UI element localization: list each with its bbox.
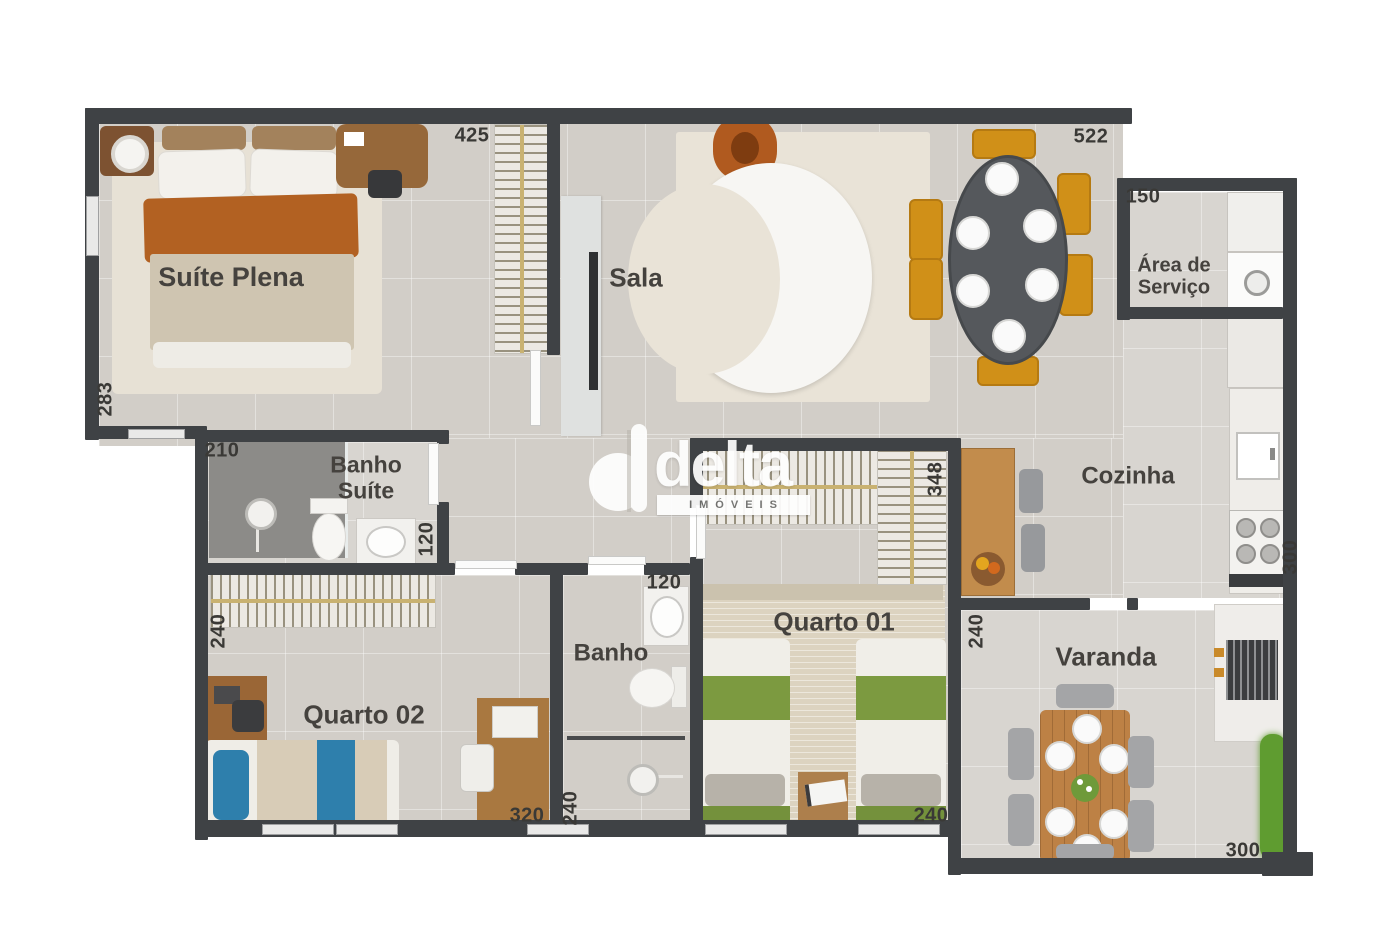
room-label-area-servico: Área de Serviço xyxy=(1122,255,1226,300)
dim-425: 425 xyxy=(455,125,490,148)
room-label-varanda: Varanda xyxy=(1055,642,1156,671)
suite-wardrobe xyxy=(494,124,550,354)
shower-divider xyxy=(567,736,685,740)
wall-segment xyxy=(690,557,703,825)
varanda-chair-left-2 xyxy=(1008,794,1034,846)
quarto02-wardrobe xyxy=(210,574,436,628)
varanda-chair-left-1 xyxy=(1008,728,1034,780)
dining-chair-left-1 xyxy=(909,199,943,261)
plate xyxy=(956,274,990,308)
window xyxy=(705,824,787,835)
wall-segment xyxy=(437,430,449,444)
quarto01-bed-right-blanket xyxy=(856,676,946,720)
window xyxy=(262,824,334,835)
suite-lamp xyxy=(111,135,149,173)
plate xyxy=(985,162,1019,196)
dim-320: 320 xyxy=(510,805,545,828)
plate xyxy=(1045,807,1075,837)
flower xyxy=(1077,779,1083,785)
quarto01-headboard xyxy=(697,584,943,600)
dim-240-quarto02: 240 xyxy=(208,614,231,649)
door-suite xyxy=(530,350,541,426)
stove-front xyxy=(1229,574,1284,587)
window xyxy=(336,824,398,835)
grill-handle xyxy=(1214,668,1224,677)
washing-machine-door xyxy=(1244,270,1270,296)
wall-segment xyxy=(948,598,1090,610)
flower xyxy=(1086,786,1092,792)
toilet-bowl xyxy=(312,513,346,561)
dim-240-varanda: 240 xyxy=(966,614,989,649)
burner xyxy=(1236,544,1256,564)
wall-segment xyxy=(195,430,208,840)
room-label-cozinha: Cozinha xyxy=(1081,464,1174,491)
varanda-chair-top xyxy=(1056,684,1114,708)
watermark-brand: delta xyxy=(654,434,791,497)
tv xyxy=(589,252,598,390)
plate xyxy=(992,319,1026,353)
plate xyxy=(1045,741,1075,771)
dim-240-quarto01: 240 xyxy=(914,805,949,828)
shower-head xyxy=(627,764,659,796)
suite-bed-pillow-back-left xyxy=(162,126,246,150)
plate xyxy=(1023,209,1057,243)
quarto01-bed-left-pillow xyxy=(705,774,785,806)
burner xyxy=(1260,518,1280,538)
wall-segment xyxy=(1127,598,1138,610)
varanda-chair-right-1 xyxy=(1128,736,1154,788)
quarto02-bed-blanket-2 xyxy=(355,740,387,828)
dim-283: 283 xyxy=(95,382,118,417)
plate xyxy=(1072,714,1102,744)
door-quarto02 xyxy=(455,560,517,569)
dim-120-banho-suite: 120 xyxy=(416,522,439,557)
suite-bed-pillow-right xyxy=(249,148,339,199)
plate xyxy=(1025,268,1059,302)
window xyxy=(86,196,99,256)
dim-240-banho: 240 xyxy=(560,791,583,826)
sink-basin xyxy=(366,526,406,558)
suite-desk-paper xyxy=(344,132,364,146)
wall-segment xyxy=(948,438,961,875)
plate xyxy=(956,216,990,250)
quarto02-bed-pillow xyxy=(213,750,249,820)
suite-bed-blanket xyxy=(143,193,359,263)
watermark: IMÓVEIS delta xyxy=(588,420,828,522)
table-flowers xyxy=(1071,774,1099,802)
stove xyxy=(1229,510,1286,578)
suite-bed-pillow-left xyxy=(157,148,247,199)
toilet-bowl xyxy=(629,668,675,708)
quarto01-bed-left-blanket xyxy=(700,676,790,720)
wall-segment xyxy=(85,108,1132,124)
plate xyxy=(1099,744,1129,774)
bar-stool xyxy=(1021,524,1045,572)
watermark-subtitle: IMÓVEIS xyxy=(689,499,784,511)
delta-logo-icon xyxy=(588,420,652,522)
plate xyxy=(1099,809,1129,839)
wall-segment xyxy=(550,563,563,825)
dim-300-varanda: 300 xyxy=(1226,840,1261,863)
room-label-banho-suite: Banho Suíte xyxy=(311,452,421,504)
floor-plan: Suíte Plena Sala Área de Serviço Cozinha… xyxy=(0,0,1400,932)
wall-segment xyxy=(1262,852,1313,876)
wall-segment xyxy=(1117,307,1283,319)
sala-armchair-seat xyxy=(731,132,759,164)
dim-120-banho: 120 xyxy=(647,572,682,595)
room-label-sala: Sala xyxy=(609,263,663,292)
quarto02-bed-blanket-1 xyxy=(257,740,317,828)
wall-segment xyxy=(437,502,449,572)
quarto02-desk-items xyxy=(492,706,538,738)
wall-segment xyxy=(560,563,588,575)
bar-stool xyxy=(1019,469,1043,513)
grill xyxy=(1226,640,1278,700)
burner xyxy=(1236,518,1256,538)
grill-handle xyxy=(1214,648,1224,657)
laundry-counter xyxy=(1227,312,1285,388)
sink-basin xyxy=(650,596,684,638)
suite-desk-chair xyxy=(368,170,402,198)
door-banho xyxy=(588,556,646,565)
suite-bed-pillow-back-right xyxy=(252,126,336,150)
room-label-quarto-02: Quarto 02 xyxy=(303,700,424,729)
dim-522: 522 xyxy=(1074,126,1109,149)
fruit xyxy=(988,562,1000,574)
dim-300-cozinha: 300 xyxy=(1280,540,1303,575)
door-banho-suite xyxy=(428,443,439,505)
quarto02-chair-white xyxy=(460,744,494,792)
wall-segment xyxy=(200,563,455,575)
suite-bed-foot xyxy=(153,342,351,368)
shower-head xyxy=(245,498,277,530)
dining-chair-left-2 xyxy=(909,258,943,320)
burner xyxy=(1260,544,1280,564)
kitchen-faucet xyxy=(1270,448,1275,460)
dim-348: 348 xyxy=(925,462,948,497)
laundry-cabinet xyxy=(1227,192,1285,252)
quarto02-desk-chair xyxy=(232,700,264,732)
room-label-banho: Banho xyxy=(574,641,649,668)
room-label-suite-plena: Suíte Plena xyxy=(158,262,304,292)
dim-150: 150 xyxy=(1126,186,1161,209)
quarto01-bed-right-pillow xyxy=(861,774,941,806)
wall-segment xyxy=(1283,178,1297,875)
dim-210: 210 xyxy=(205,440,240,463)
room-label-quarto-01: Quarto 01 xyxy=(773,607,894,636)
quarto02-bed-blue-band xyxy=(317,740,355,828)
varanda-chair-right-2 xyxy=(1128,800,1154,852)
wall-segment xyxy=(547,108,560,355)
window xyxy=(128,429,185,439)
